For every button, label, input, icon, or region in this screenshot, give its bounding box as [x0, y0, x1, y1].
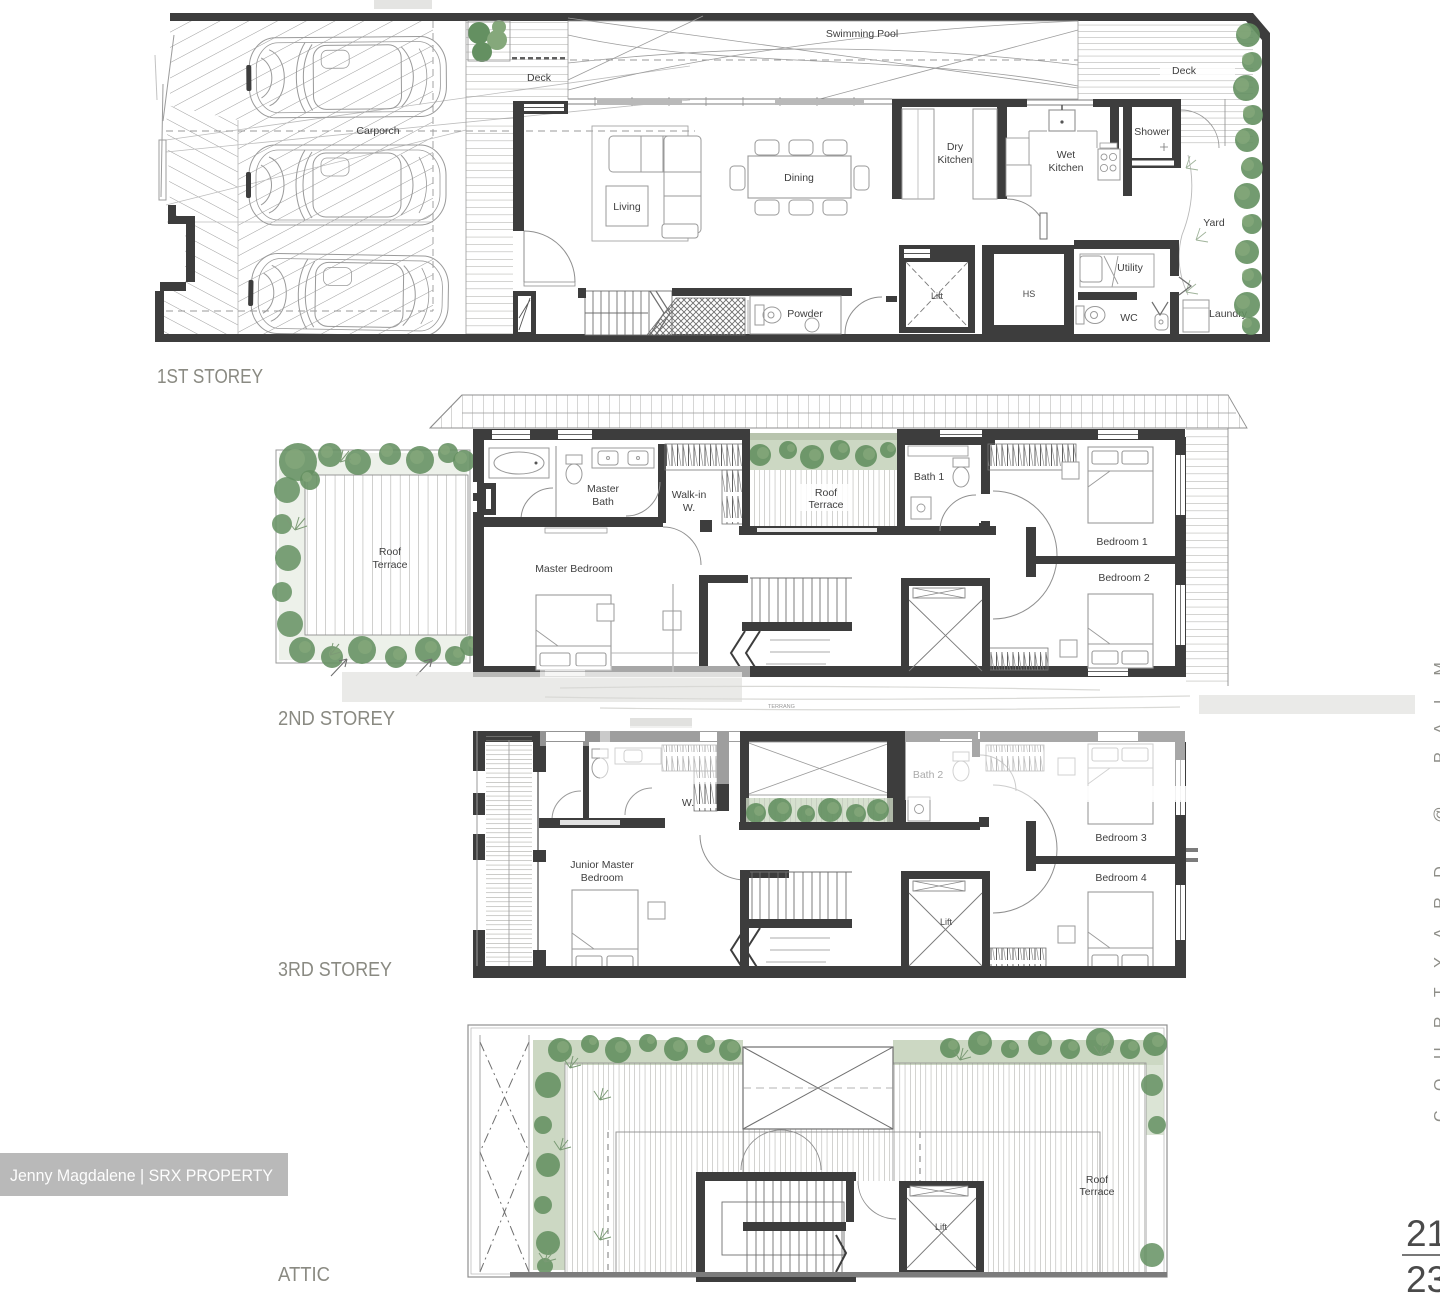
- svg-text:Bedroom 3: Bedroom 3: [1095, 832, 1147, 844]
- svg-text:2ND STOREY: 2ND STOREY: [278, 708, 395, 730]
- svg-text:Kitchen: Kitchen: [1048, 162, 1083, 174]
- svg-text:Junior Master: Junior Master: [570, 859, 634, 871]
- svg-text:Master: Master: [587, 483, 620, 495]
- svg-text:Wet: Wet: [1057, 149, 1076, 161]
- svg-text:21: 21: [1406, 1213, 1440, 1254]
- svg-text:Roof: Roof: [815, 487, 837, 499]
- svg-text:Utility: Utility: [1117, 262, 1143, 274]
- svg-text:Living: Living: [613, 201, 641, 213]
- svg-text:Master Bedroom: Master Bedroom: [535, 563, 613, 575]
- svg-text:Bedroom 1: Bedroom 1: [1096, 536, 1148, 548]
- svg-text:Bedroom: Bedroom: [581, 872, 624, 884]
- svg-text:W.: W.: [682, 797, 694, 809]
- svg-text:Kitchen: Kitchen: [937, 154, 972, 166]
- svg-text:Roof: Roof: [379, 546, 401, 558]
- svg-text:Yard: Yard: [1203, 217, 1225, 229]
- svg-text:Powder: Powder: [787, 308, 823, 320]
- svg-text:Carporch: Carporch: [356, 125, 399, 137]
- svg-text:1ST STOREY: 1ST STOREY: [157, 366, 263, 388]
- svg-text:COURTYARD @ PALM: COURTYARD @ PALM: [1432, 643, 1440, 1122]
- svg-text:Jenny Magdalene | SRX PROPERTY: Jenny Magdalene | SRX PROPERTY: [10, 1167, 273, 1185]
- svg-text:Lift: Lift: [931, 291, 944, 301]
- svg-text:Dry: Dry: [947, 141, 964, 153]
- svg-text:Deck: Deck: [1172, 65, 1197, 77]
- svg-text:Bath 1: Bath 1: [914, 471, 945, 483]
- svg-text:Swimming Pool: Swimming Pool: [826, 28, 898, 40]
- svg-text:W.: W.: [683, 502, 695, 514]
- svg-text:HS: HS: [1023, 289, 1036, 299]
- svg-text:ATTIC: ATTIC: [278, 1264, 330, 1286]
- svg-text:Bath: Bath: [592, 496, 614, 508]
- svg-text:Terrace: Terrace: [808, 499, 843, 511]
- svg-text:Terrace: Terrace: [372, 559, 407, 571]
- svg-text:Walk-in: Walk-in: [672, 489, 707, 501]
- svg-text:Deck: Deck: [527, 72, 552, 84]
- svg-text:Shower: Shower: [1134, 126, 1170, 138]
- svg-text:Dining: Dining: [784, 172, 814, 184]
- svg-text:3RD STOREY: 3RD STOREY: [278, 959, 392, 981]
- svg-text:WC: WC: [1120, 312, 1138, 324]
- svg-text:Bedroom 4: Bedroom 4: [1095, 872, 1147, 884]
- svg-text:Lift: Lift: [935, 1222, 948, 1232]
- svg-text:23: 23: [1406, 1259, 1440, 1297]
- svg-text:Lift: Lift: [940, 917, 953, 927]
- svg-text:Terrace: Terrace: [1079, 1186, 1114, 1198]
- svg-text:Roof: Roof: [1086, 1174, 1108, 1186]
- svg-text:Bedroom 2: Bedroom 2: [1098, 572, 1150, 584]
